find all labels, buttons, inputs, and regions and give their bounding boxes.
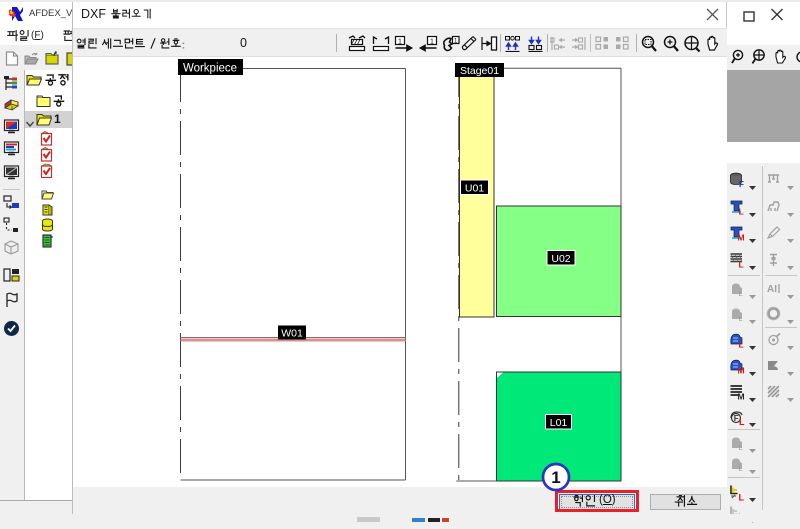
svg-text:F: F — [739, 180, 744, 188]
svg-text:Stage01: Stage01 — [460, 65, 499, 77]
svg-text:L: L — [739, 443, 743, 451]
svg-text:L: L — [739, 464, 743, 472]
svg-text:W01: W01 — [281, 328, 303, 340]
svg-text:L: L — [739, 207, 744, 216]
svg-text:AI: AI — [767, 284, 777, 295]
svg-text:U01: U01 — [465, 183, 484, 195]
svg-text:M: M — [738, 366, 745, 375]
svg-text:L: L — [739, 417, 745, 426]
svg-text:M: M — [738, 392, 745, 401]
svg-text:1: 1 — [551, 468, 560, 487]
svg-text:1: 1 — [454, 38, 458, 45]
svg-text:1: 1 — [430, 39, 434, 46]
svg-text:L: L — [739, 289, 743, 297]
svg-text:M: M — [738, 233, 745, 242]
svg-text:L01: L01 — [550, 417, 568, 429]
svg-text:Workpiece: Workpiece — [183, 63, 237, 75]
svg-text:1: 1 — [398, 39, 402, 46]
svg-text:U02: U02 — [551, 253, 570, 265]
svg-text:L: L — [739, 260, 744, 269]
svg-text:L: L — [739, 493, 745, 502]
svg-text:L: L — [739, 314, 743, 322]
svg-text:L: L — [739, 340, 744, 349]
